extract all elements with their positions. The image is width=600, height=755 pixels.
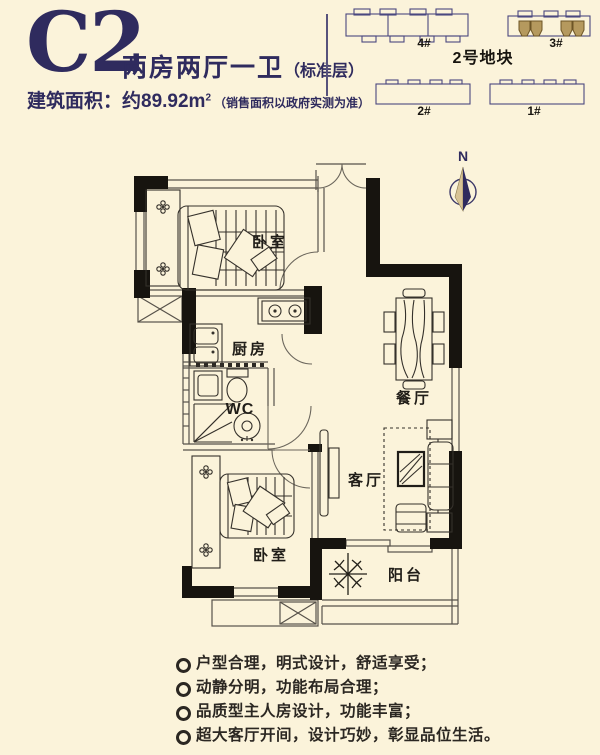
site-building-3 [508,11,590,36]
feature-text: 户型合理，明式设计，舒适享受； [196,655,436,672]
building-1-label: 1# [527,104,541,118]
bay-duct-icon [280,602,316,624]
highlighted-unit-icon [519,21,584,36]
wc-toilet [227,369,248,402]
bedroom-2-bed [220,474,294,538]
floor-plan: 卧室 厨房 WC 餐厅 客厅 卧室 阳台 [125,148,470,640]
room-label-bedroom-1: 卧室 [252,233,288,251]
room-label-bedroom-2: 卧室 [253,546,289,564]
floorplan-brochure-page: C2 两房两厅一卫（标准层） 建筑面积：约89.92m2（销售面积以政府实测为准… [0,0,600,755]
dining-table [384,289,444,389]
site-building-2 [376,80,470,104]
wc-vanity [194,371,222,400]
area-line: 建筑面积：约89.92m2（销售面积以政府实测为准） [27,86,370,113]
plant-icon [329,553,367,595]
duct-shaft-icon [138,296,182,322]
site-plan: 4# 3# 2号地块 2# 1# [330,0,600,135]
area-superscript: 2 [205,93,211,104]
ring-bullet-icon [176,682,191,697]
plot-label: 2号地块 [453,48,514,67]
living-rug [384,428,430,530]
unit-type: 两房两厅一卫 [122,54,284,82]
ring-bullet-icon [176,706,191,721]
kitchen-stove [258,298,310,324]
area-value: 约89.92m [122,91,205,112]
feature-item: 动静分明，功能布局合理； [176,679,500,697]
header-divider [326,14,328,96]
room-label-living: 客厅 [347,471,384,489]
bedroom-1-wardrobe [146,190,180,286]
ring-bullet-icon [176,658,191,673]
feature-item: 品质型主人房设计，功能丰富； [176,703,500,721]
feature-text: 动静分明，功能布局合理； [196,679,388,696]
building-3-label: 3# [549,36,563,50]
feature-text: 品质型主人房设计，功能丰富； [196,703,420,720]
room-label-balcony: 阳台 [388,566,424,584]
room-label-dining: 餐厅 [396,389,432,407]
feature-list: 户型合理，明式设计，舒适享受； 动静分明，功能布局合理； 品质型主人房设计，功能… [176,655,500,751]
building-2-label: 2# [417,104,431,118]
room-label-wc: WC [226,401,255,418]
feature-item: 超大客厅开间，设计巧妙，彰显品位生活。 [176,727,500,745]
feature-item: 户型合理，明式设计，舒适享受； [176,655,500,673]
feature-text: 超大客厅开间，设计巧妙，彰显品位生活。 [196,727,500,744]
sliding-door [346,540,432,552]
ring-bullet-icon [176,730,191,745]
building-4-label: 4# [417,36,431,50]
bedroom-2-wardrobe [192,456,220,568]
tv-cabinet [320,430,339,516]
site-building-1 [490,80,584,104]
site-building-4 [346,9,468,42]
area-label: 建筑面积： [27,91,122,112]
room-label-kitchen: 厨房 [232,340,268,358]
